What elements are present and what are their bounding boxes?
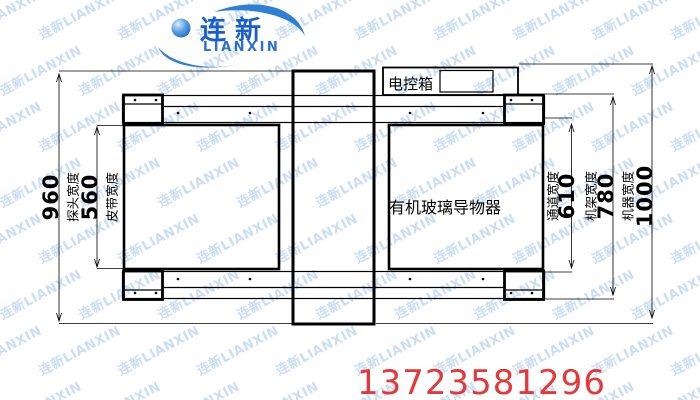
phone-number: 13723581296 [357, 363, 606, 400]
dim-value-belt-width: 560 [78, 174, 102, 221]
dim-value-machine-width: 1000 [633, 165, 657, 227]
logo-text-en: LIANXIN [203, 40, 280, 55]
dim-value-probe-width: 960 [39, 174, 63, 221]
logo-dot-icon [172, 19, 191, 38]
blueprint-page: 连新LIANXIN连新LIANXIN连新LIANXIN连新LIANXIN连新LI… [0, 0, 700, 400]
control-box-label: 电控箱 [388, 73, 433, 94]
dim-value-frame-width: 780 [594, 173, 618, 220]
rail-bottom [123, 272, 545, 299]
belt-left [124, 125, 279, 269]
rail-top [123, 96, 545, 123]
control-box-inner-panel [440, 71, 493, 93]
plexiglass-guide-label: 有机玻璃导物器 [389, 194, 501, 218]
dim-value-channel-width: 610 [555, 173, 579, 220]
probe-housing [293, 71, 374, 324]
dim-label-belt-width: 皮带宽度 [102, 172, 121, 222]
